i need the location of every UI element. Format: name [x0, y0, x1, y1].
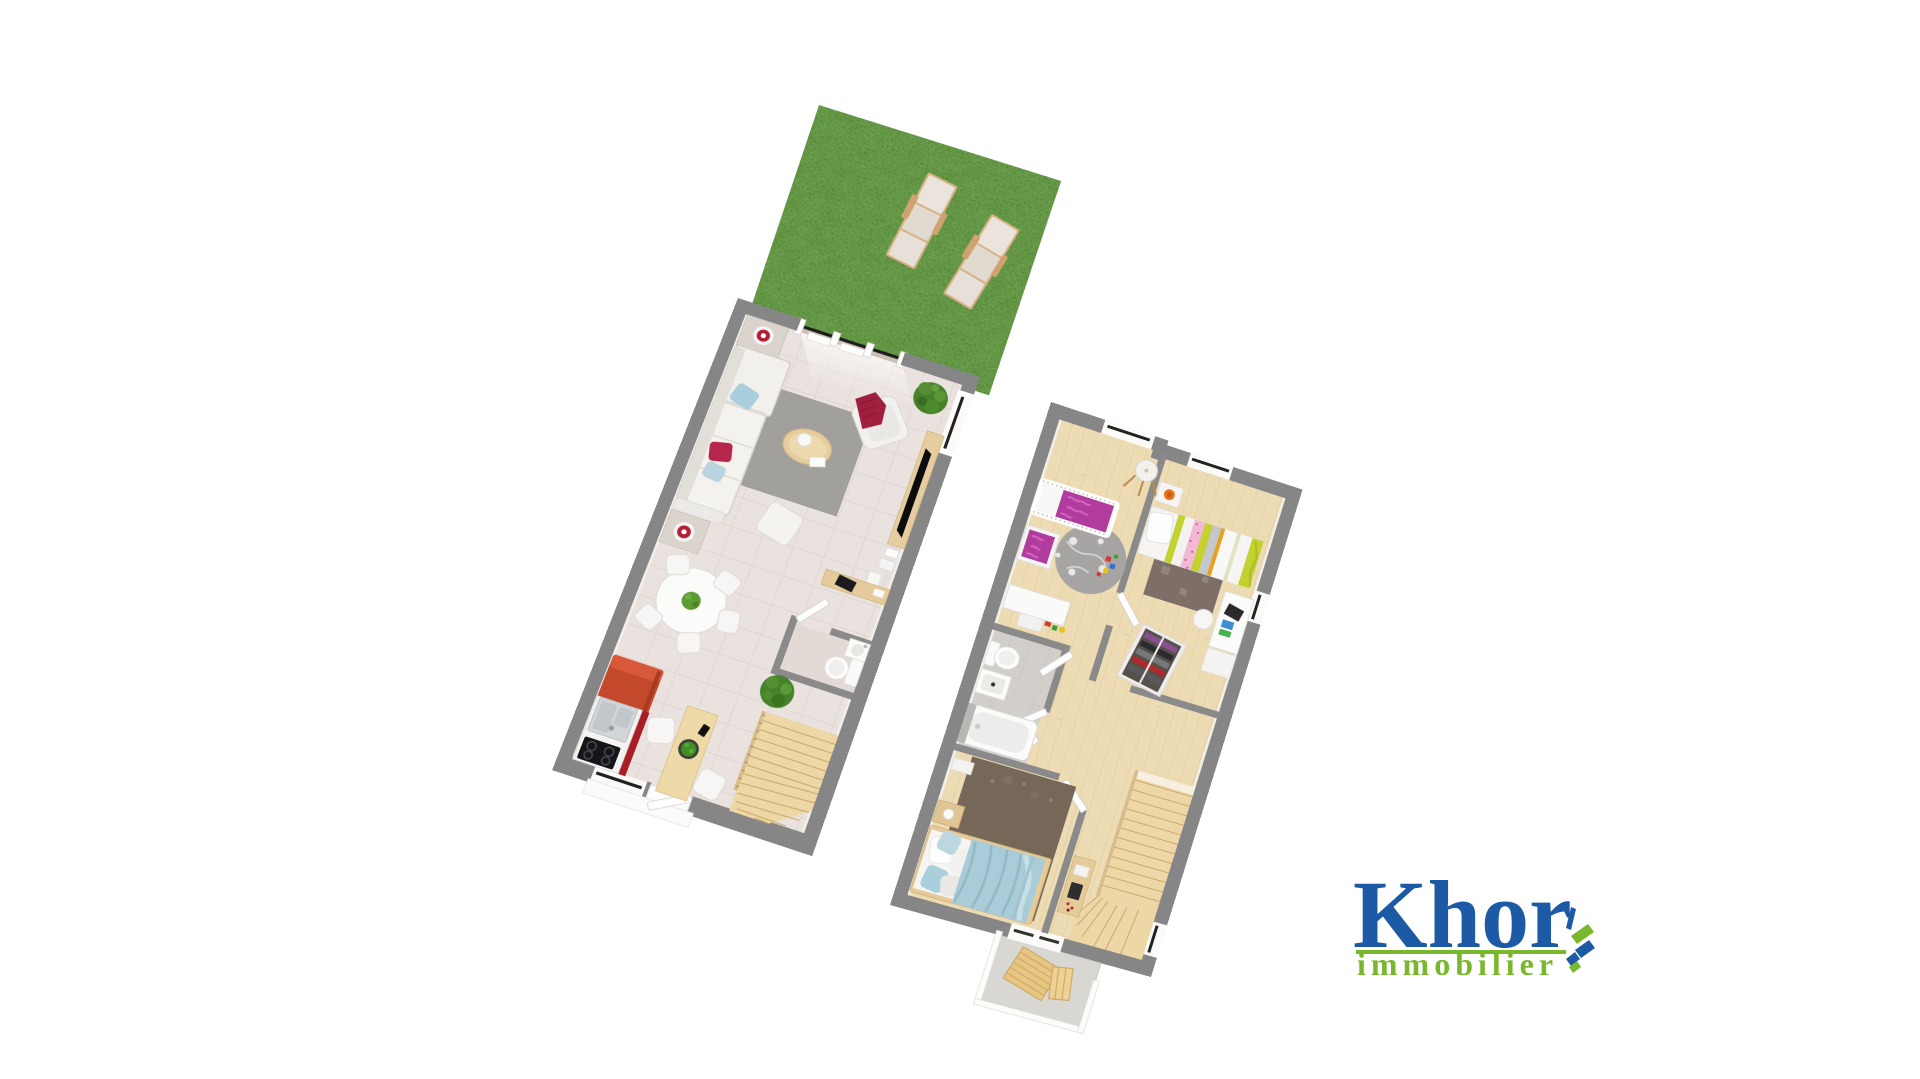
svg-text:immobilier: immobilier — [1357, 946, 1558, 982]
